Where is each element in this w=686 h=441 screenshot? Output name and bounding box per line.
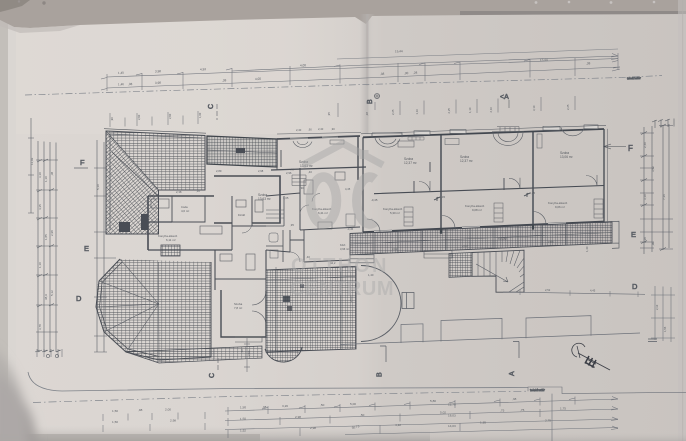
- svg-text:,38: ,38: [50, 171, 54, 176]
- svg-text:4,93: 4,93: [200, 67, 206, 71]
- svg-text:B: B: [377, 372, 384, 377]
- svg-text:2,89: 2,89: [216, 169, 222, 173]
- svg-text:1,85: 1,85: [44, 234, 48, 240]
- svg-text:F: F: [80, 158, 85, 167]
- svg-text:,90: ,90: [308, 128, 312, 132]
- svg-text:2,06: 2,06: [247, 350, 251, 356]
- svg-text:1,75: 1,75: [560, 407, 566, 411]
- svg-text:1,00: 1,00: [198, 112, 202, 118]
- svg-text:2,25: 2,25: [391, 109, 395, 115]
- svg-text:14,03: 14,03: [448, 424, 456, 428]
- svg-text:15,44: 15,44: [540, 58, 548, 62]
- svg-text:1,50: 1,50: [112, 420, 118, 424]
- svg-text:1,40: 1,40: [585, 246, 589, 252]
- svg-text:Közl.: Közl.: [340, 243, 346, 247]
- svg-text:1,35: 1,35: [480, 420, 486, 424]
- svg-text:D: D: [632, 282, 638, 291]
- svg-text:A: A: [509, 371, 516, 376]
- svg-text:,40: ,40: [290, 168, 294, 172]
- svg-text:,90: ,90: [240, 349, 244, 353]
- svg-text:12,37 m²: 12,37 m²: [404, 161, 417, 165]
- svg-text:5,10: 5,10: [96, 184, 100, 190]
- svg-text:15,44: 15,44: [395, 49, 403, 53]
- svg-text:,90: ,90: [300, 186, 304, 190]
- svg-text:13,63 m²: 13,63 m²: [258, 197, 271, 201]
- svg-text:2,60: 2,60: [168, 113, 172, 119]
- svg-text:3,10: 3,10: [643, 194, 647, 200]
- svg-text:<A: <A: [500, 94, 509, 101]
- svg-text:5,30 m²: 5,30 m²: [390, 211, 400, 215]
- svg-text:+-0,45: +-0,45: [437, 195, 445, 199]
- svg-text:2,98: 2,98: [170, 418, 176, 422]
- svg-text:3,98: 3,98: [155, 81, 161, 85]
- svg-text:4,6 m²: 4,6 m²: [181, 209, 189, 213]
- svg-text:Fürdő: Fürdő: [238, 213, 246, 217]
- svg-text:5,02: 5,02: [440, 410, 446, 414]
- svg-text:,75: ,75: [520, 408, 525, 412]
- svg-text:,95: ,95: [327, 112, 331, 116]
- svg-text:-0,45: -0,45: [347, 227, 354, 231]
- svg-text:Terasz: Terasz: [498, 237, 508, 241]
- svg-text:2,96: 2,96: [286, 171, 292, 175]
- svg-text:1,38: 1,38: [643, 237, 647, 243]
- svg-text:,38: ,38: [586, 61, 591, 65]
- svg-text:,98: ,98: [138, 408, 143, 412]
- svg-text:4,12: 4,12: [395, 423, 401, 427]
- svg-text:4,45: 4,45: [345, 187, 351, 191]
- svg-text:D: D: [76, 294, 82, 303]
- svg-text:3,98: 3,98: [155, 69, 161, 73]
- svg-text:11,92: 11,92: [30, 157, 34, 165]
- svg-text:2,98: 2,98: [258, 169, 264, 173]
- svg-text:12,37 m²: 12,37 m²: [460, 159, 473, 163]
- svg-text:2,00: 2,00: [165, 408, 171, 412]
- svg-text:2,98: 2,98: [295, 415, 301, 419]
- svg-text:,90: ,90: [110, 117, 114, 121]
- svg-text:-0,45: -0,45: [371, 198, 378, 202]
- svg-text:2,10: 2,10: [655, 304, 659, 310]
- svg-text:1,50: 1,50: [240, 417, 246, 421]
- svg-text:16,03: 16,03: [448, 414, 456, 418]
- svg-text:2,10: 2,10: [489, 107, 493, 113]
- svg-text:F: F: [628, 144, 633, 153]
- svg-text:3,78: 3,78: [38, 324, 42, 330]
- svg-text:1,10: 1,10: [415, 109, 419, 115]
- svg-text:,90: ,90: [331, 127, 335, 131]
- svg-text:1,52: 1,52: [240, 429, 246, 433]
- svg-text:1,46: 1,46: [118, 82, 124, 86]
- svg-text:9,06 m²: 9,06 m²: [555, 205, 565, 209]
- svg-text:2,80: 2,80: [548, 240, 554, 244]
- svg-text:2,82: 2,82: [392, 247, 398, 251]
- svg-text:4,00: 4,00: [300, 63, 306, 67]
- svg-text:1,50: 1,50: [112, 409, 118, 413]
- svg-text:,38: ,38: [512, 397, 517, 401]
- svg-text:2,98: 2,98: [310, 426, 316, 430]
- svg-text:1,10: 1,10: [38, 262, 42, 268]
- svg-text:+-0,45: +-0,45: [527, 191, 535, 195]
- svg-text:,10: ,10: [196, 189, 200, 193]
- svg-text:,38: ,38: [365, 112, 369, 116]
- svg-text:,75: ,75: [500, 409, 505, 413]
- svg-text:OTTHON: OTTHON: [291, 255, 389, 277]
- svg-text:6,11 m²: 6,11 m²: [166, 238, 176, 242]
- svg-text:E: E: [631, 230, 636, 239]
- svg-text:3,26: 3,26: [282, 404, 288, 408]
- svg-text:E: E: [84, 244, 89, 253]
- svg-text:2,40: 2,40: [296, 128, 302, 132]
- svg-text:1,50: 1,50: [240, 405, 246, 409]
- svg-text:2,60: 2,60: [137, 114, 141, 120]
- svg-text:3,10: 3,10: [38, 172, 42, 178]
- svg-text:B: B: [367, 99, 374, 104]
- svg-text:38,9: 38,9: [44, 294, 48, 300]
- svg-text:5,00: 5,00: [350, 402, 356, 406]
- svg-text:,50: ,50: [360, 413, 365, 417]
- svg-text:4,35: 4,35: [38, 204, 42, 210]
- svg-text:3,10: 3,10: [532, 105, 536, 111]
- svg-text:telekhatár: telekhatár: [627, 76, 642, 81]
- svg-text:7,36: 7,36: [662, 194, 666, 200]
- svg-text:2,25: 2,25: [566, 104, 570, 110]
- svg-text:C: C: [208, 104, 215, 109]
- svg-text:2,75: 2,75: [545, 418, 551, 422]
- svg-text:4,00: 4,00: [255, 77, 261, 81]
- svg-text:1,55: 1,55: [663, 326, 667, 332]
- svg-text:,30: ,30: [404, 71, 409, 75]
- svg-text:,40: ,40: [308, 170, 312, 174]
- svg-text:1,45: 1,45: [118, 71, 124, 75]
- svg-text:2,98: 2,98: [50, 230, 54, 236]
- svg-text:C: C: [209, 373, 216, 378]
- svg-text:3,52: 3,52: [651, 166, 655, 172]
- svg-text:12,70: 12,70: [448, 402, 456, 406]
- svg-text:,38: ,38: [380, 72, 385, 76]
- svg-text:1,10: 1,10: [44, 176, 48, 182]
- svg-text:1,10: 1,10: [468, 107, 472, 113]
- svg-text:2,40: 2,40: [318, 127, 324, 131]
- svg-text:,28: ,28: [413, 71, 418, 75]
- svg-text:7,8 m²: 7,8 m²: [234, 306, 242, 310]
- svg-text:2,80: 2,80: [462, 244, 468, 248]
- svg-text:,95: ,95: [290, 223, 294, 227]
- svg-text:,38: ,38: [222, 78, 227, 82]
- svg-text:3,96 m²: 3,96 m²: [340, 247, 349, 251]
- svg-text:CENTRUM: CENTRUM: [290, 278, 394, 300]
- svg-text:13,06 m²: 13,06 m²: [560, 155, 573, 159]
- svg-text:5,80: 5,80: [430, 399, 436, 403]
- svg-text:2,38: 2,38: [176, 190, 182, 194]
- svg-text:telekhatár: telekhatár: [530, 388, 546, 392]
- svg-text:,38: ,38: [128, 82, 133, 86]
- svg-text:6,41 m²: 6,41 m²: [318, 211, 328, 215]
- svg-text:,90: ,90: [651, 241, 655, 246]
- svg-text:9,08 m²: 9,08 m²: [472, 208, 482, 212]
- svg-text:5,12: 5,12: [50, 290, 54, 296]
- svg-text:2,25: 2,25: [447, 108, 451, 114]
- svg-text:,50: ,50: [320, 403, 325, 407]
- svg-text:,38: ,38: [262, 405, 267, 409]
- svg-text:4,45: 4,45: [590, 289, 596, 293]
- svg-text:2,40: 2,40: [643, 142, 647, 148]
- svg-text:2,52: 2,52: [545, 288, 551, 292]
